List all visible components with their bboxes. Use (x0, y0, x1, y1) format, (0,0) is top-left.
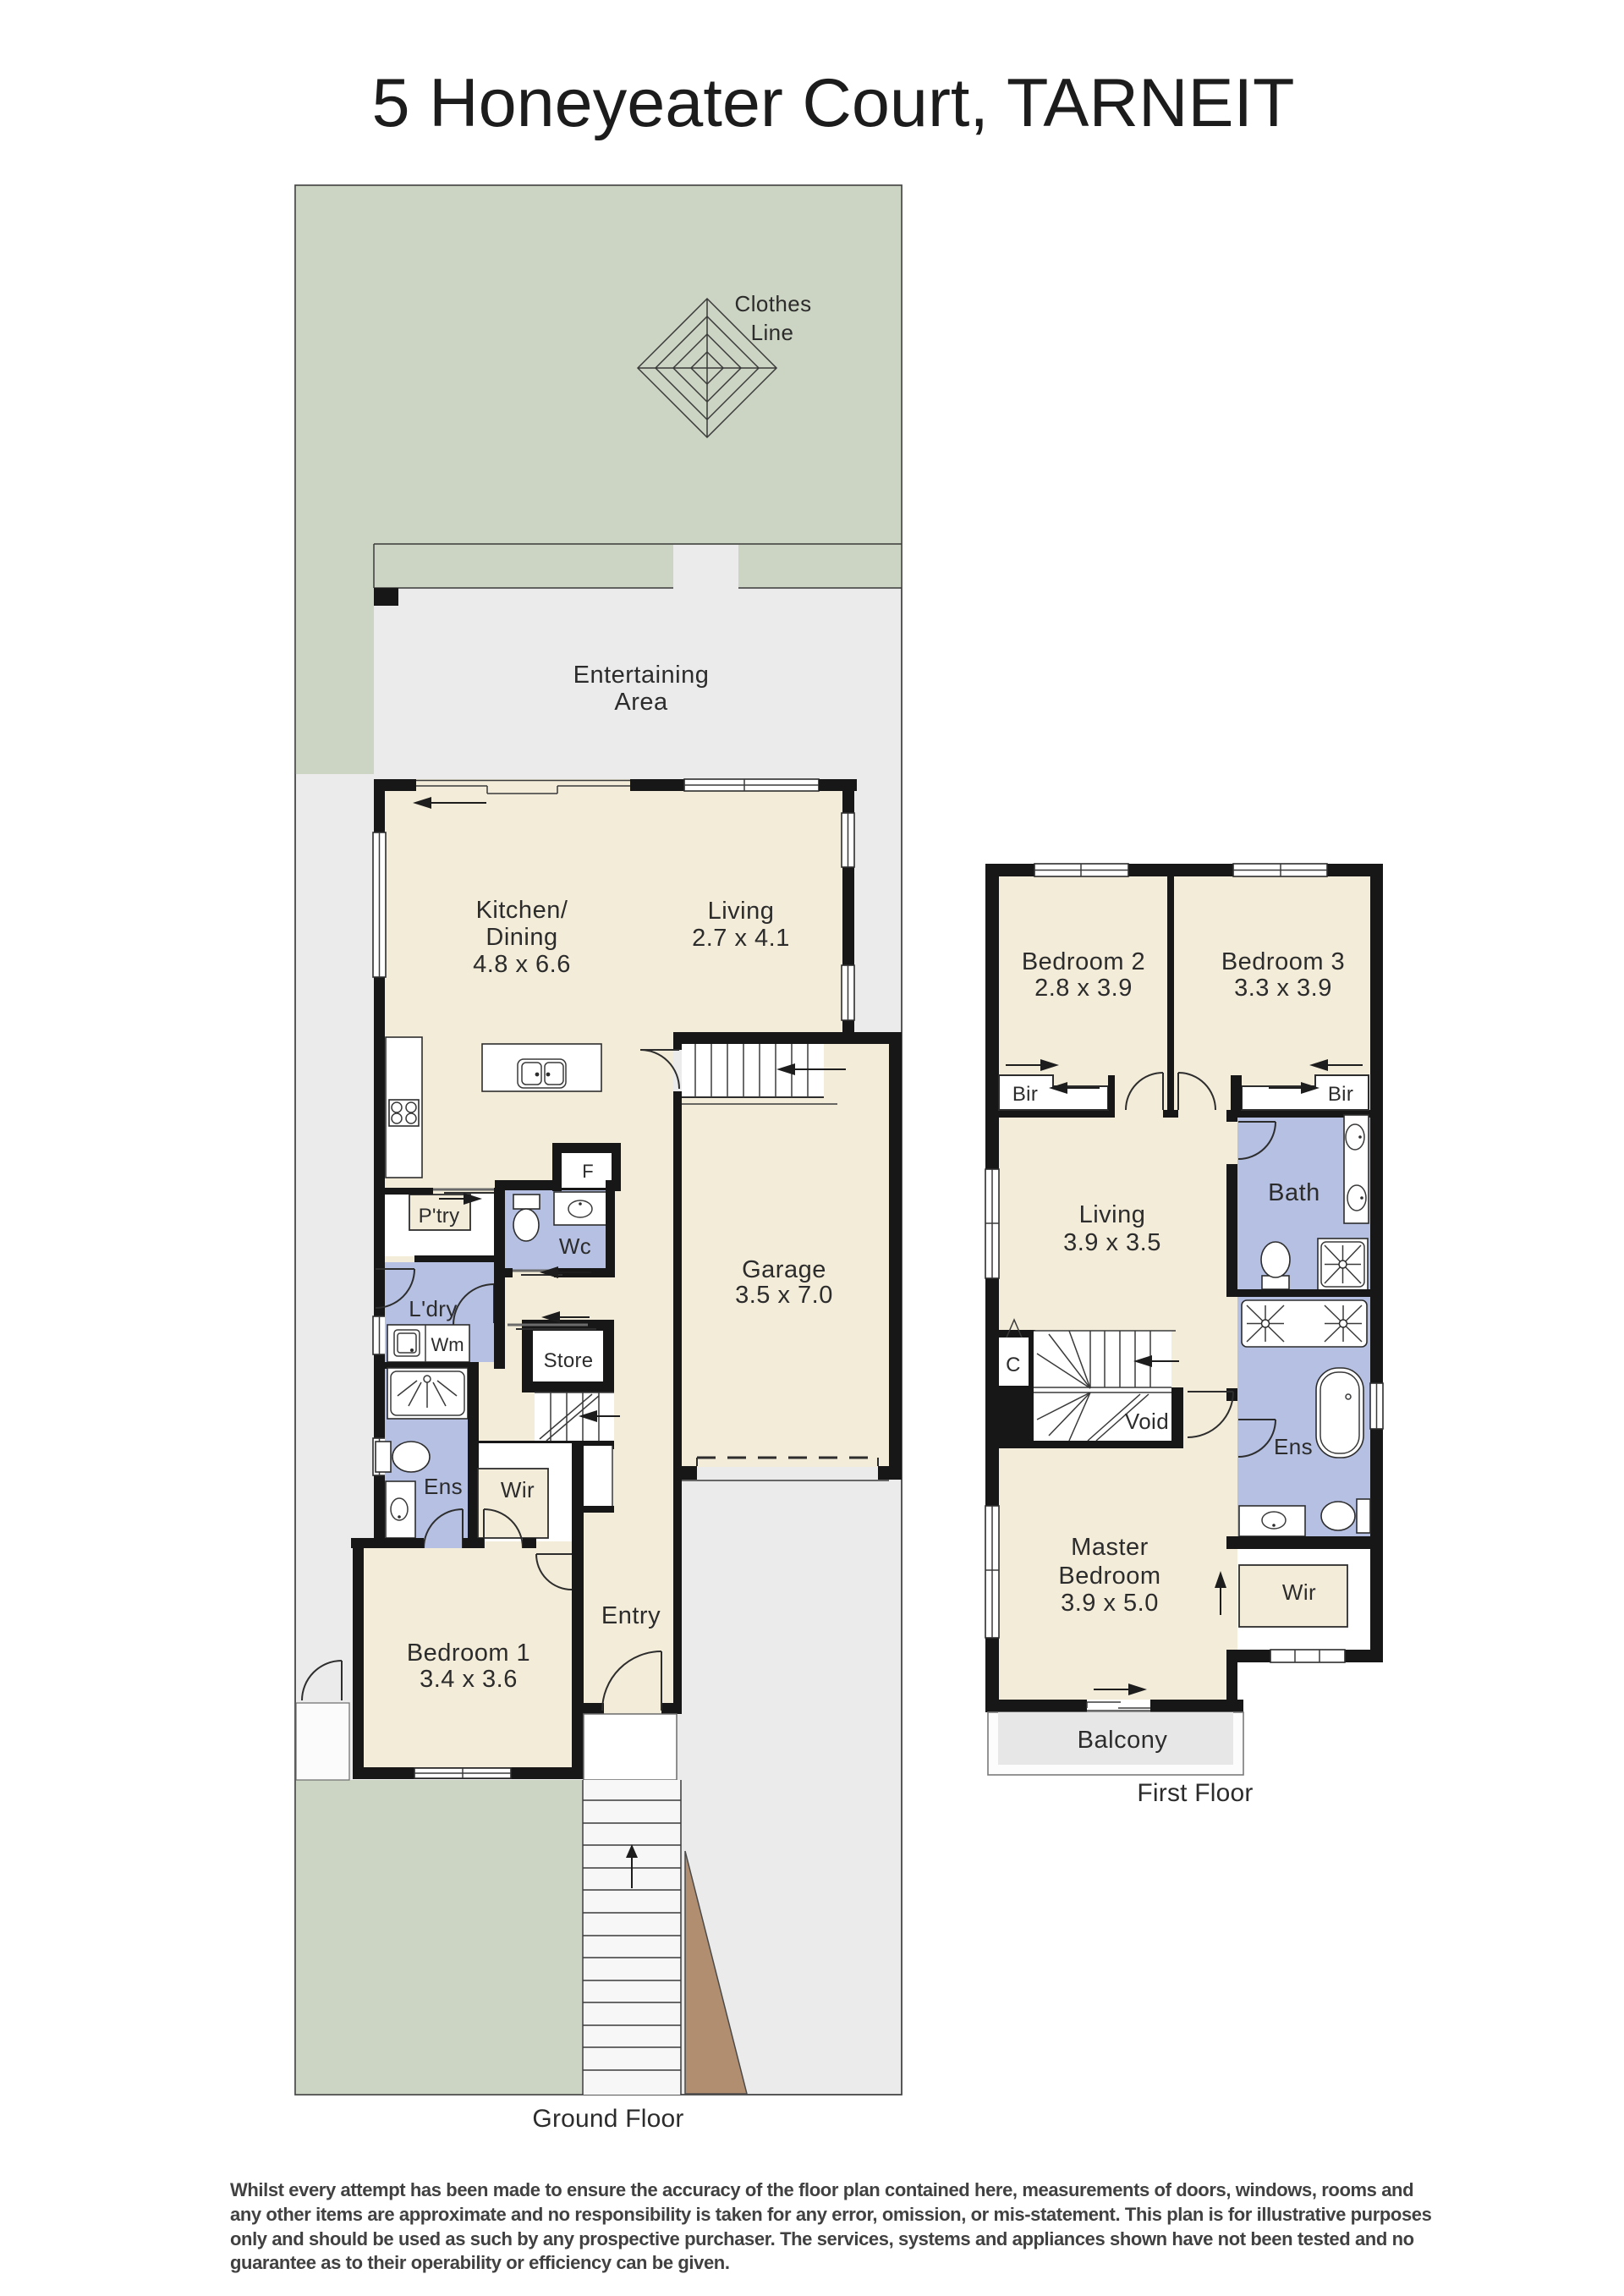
svg-text:Ens: Ens (424, 1474, 463, 1499)
svg-text:3.3 x 3.9: 3.3 x 3.9 (1234, 975, 1332, 1002)
svg-text:P'try: P'try (419, 1205, 460, 1228)
svg-text:Living: Living (708, 898, 775, 925)
svg-text:Bedroom: Bedroom (1058, 1563, 1160, 1590)
svg-text:Ens: Ens (1274, 1434, 1313, 1459)
svg-text:4.8 x 6.6: 4.8 x 6.6 (473, 951, 571, 978)
svg-text:Store: Store (544, 1349, 594, 1372)
svg-text:Entertaining: Entertaining (573, 662, 710, 689)
svg-text:Garage: Garage (742, 1256, 826, 1283)
svg-text:Kitchen/: Kitchen/ (476, 897, 568, 924)
svg-text:3.9 x 3.5: 3.9 x 3.5 (1063, 1229, 1161, 1256)
svg-text:Dining: Dining (486, 924, 557, 951)
svg-text:3.9 x 5.0: 3.9 x 5.0 (1061, 1590, 1159, 1617)
svg-text:Ground Floor: Ground Floor (532, 2105, 683, 2133)
svg-text:Bir: Bir (1328, 1083, 1353, 1106)
svg-text:5 Honeyeater Court, TARNEIT: 5 Honeyeater Court, TARNEIT (372, 65, 1295, 141)
svg-text:3.4 x 3.6: 3.4 x 3.6 (420, 1666, 518, 1693)
svg-text:Void: Void (1125, 1409, 1169, 1434)
svg-text:2.7 x 4.1: 2.7 x 4.1 (692, 925, 790, 952)
svg-text:Master: Master (1071, 1534, 1149, 1561)
svg-text:Line: Line (751, 320, 794, 345)
svg-text:Bedroom 3: Bedroom 3 (1221, 948, 1345, 975)
svg-text:Bedroom 2: Bedroom 2 (1022, 948, 1145, 975)
svg-text:Living: Living (1079, 1201, 1146, 1228)
svg-text:First Floor: First Floor (1137, 1779, 1253, 1807)
svg-text:Wc: Wc (559, 1233, 591, 1259)
svg-text:Balcony: Balcony (1078, 1727, 1168, 1754)
svg-text:Bedroom 1: Bedroom 1 (407, 1640, 530, 1667)
svg-text:2.8 x 3.9: 2.8 x 3.9 (1034, 975, 1133, 1002)
svg-text:Wir: Wir (501, 1477, 535, 1502)
svg-text:L'dry: L'dry (409, 1296, 458, 1321)
svg-text:Wm: Wm (431, 1334, 464, 1355)
svg-text:Wir: Wir (1282, 1579, 1316, 1605)
svg-text:3.5 x 7.0: 3.5 x 7.0 (735, 1282, 833, 1309)
svg-text:F: F (582, 1161, 593, 1182)
svg-text:Area: Area (614, 689, 668, 716)
svg-text:Entry: Entry (601, 1602, 661, 1629)
svg-text:Bir: Bir (1012, 1083, 1038, 1106)
svg-text:Clothes: Clothes (735, 291, 812, 316)
svg-text:C: C (1006, 1354, 1021, 1376)
svg-text:Bath: Bath (1268, 1179, 1320, 1206)
